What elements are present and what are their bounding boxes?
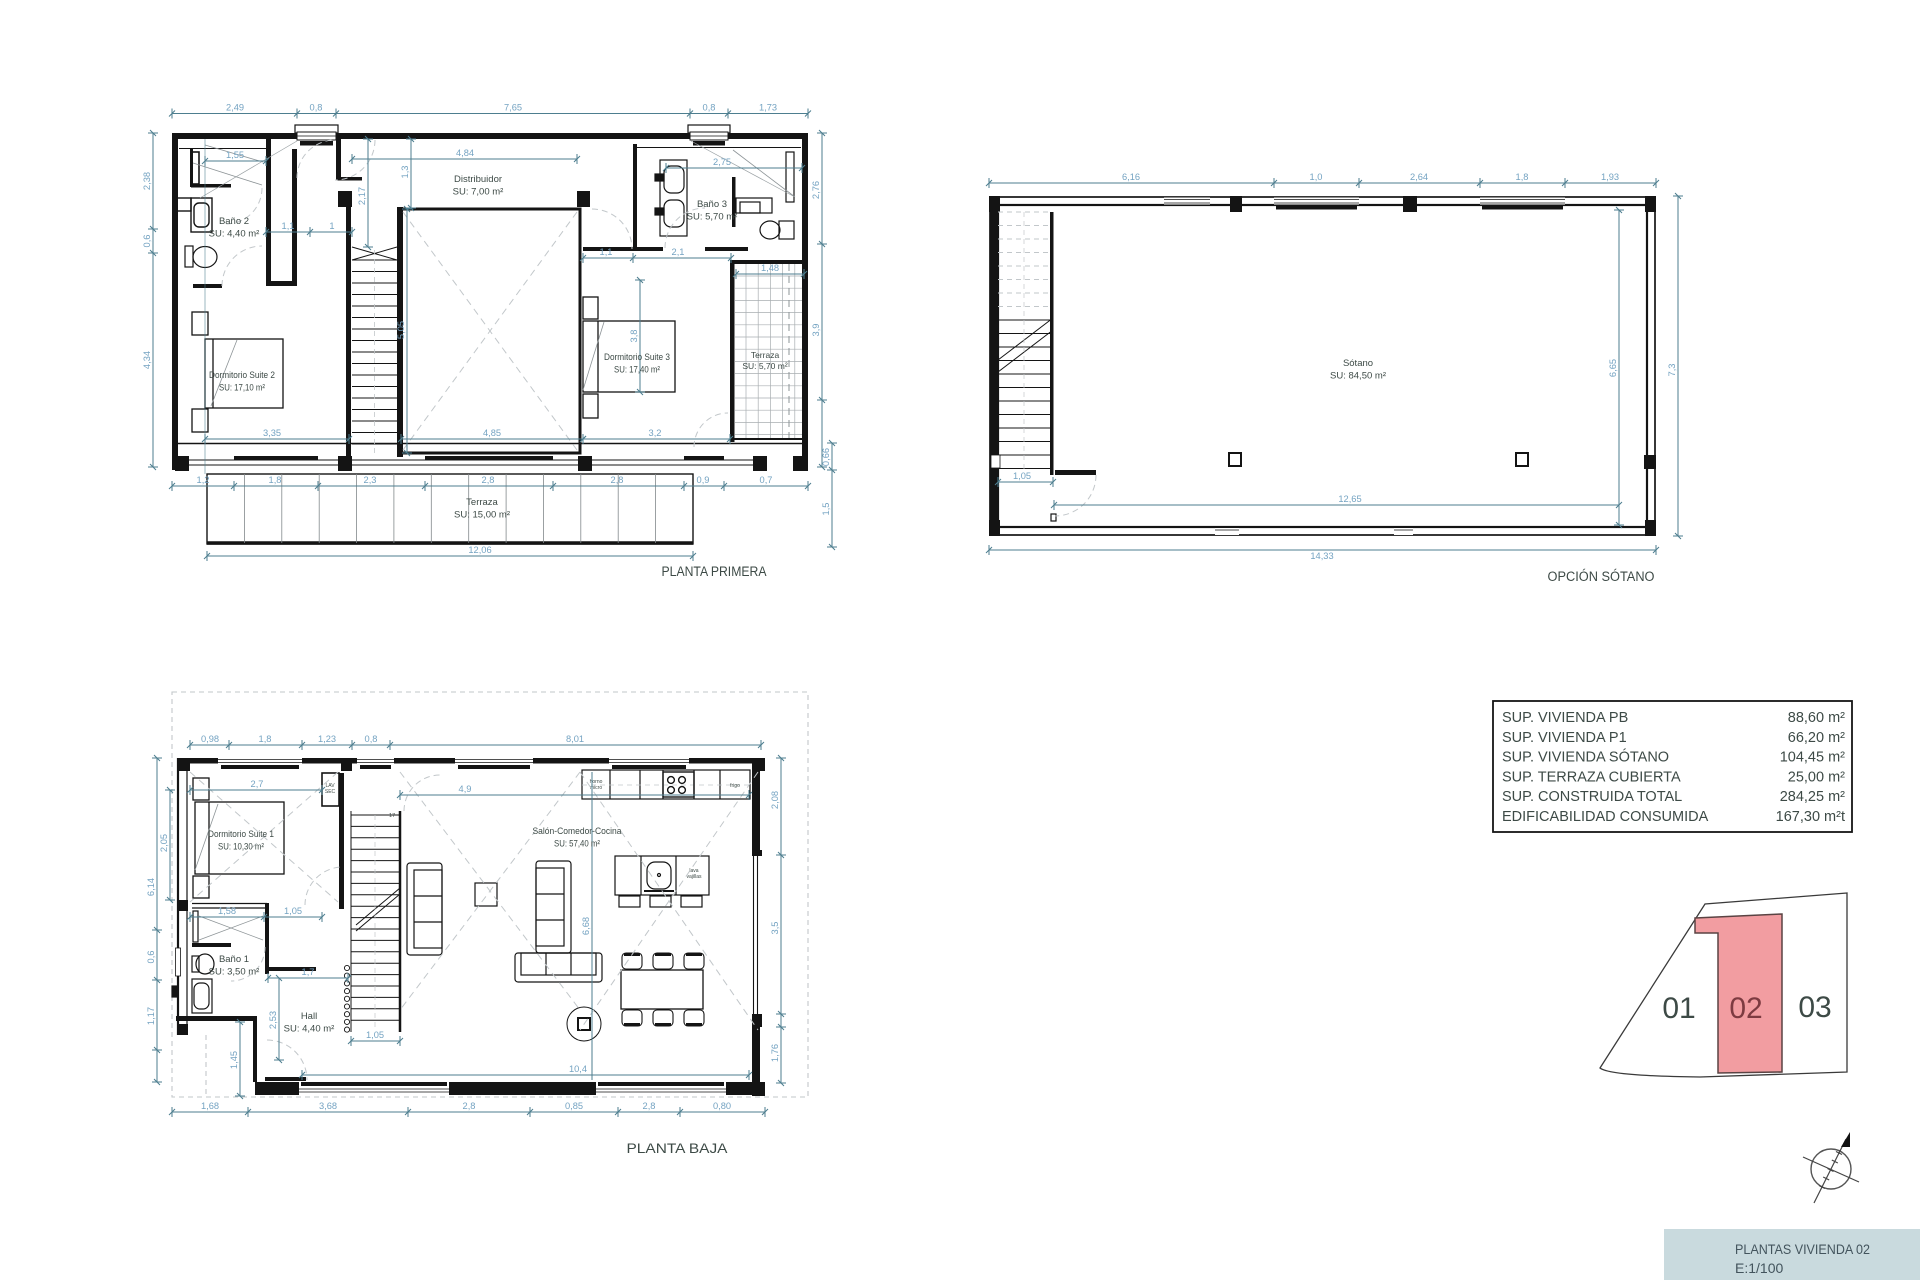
svg-text:1,73: 1,73 [759,103,777,113]
svg-text:8,01: 8,01 [566,734,584,744]
svg-text:0,9: 0,9 [697,475,710,485]
svg-text:Dormitorio Suite 2: Dormitorio Suite 2 [209,370,275,381]
svg-text:2,1: 2,1 [672,247,685,257]
svg-text:Sótano: Sótano [1343,358,1373,369]
svg-text:0,8: 0,8 [703,103,716,113]
svg-text:0,80: 0,80 [713,1101,731,1111]
svg-text:1,5: 1,5 [821,503,831,516]
svg-text:EDIFICABILIDAD CONSUMIDA: EDIFICABILIDAD CONSUMIDA [1502,809,1709,825]
svg-text:0,8: 0,8 [365,734,378,744]
svg-text:frigo: frigo [730,783,740,789]
svg-text:284,25 m²: 284,25 m² [1780,789,1845,805]
svg-text:12,65: 12,65 [1338,494,1361,504]
svg-text:4,85: 4,85 [483,428,501,438]
svg-text:02: 02 [1729,992,1762,1025]
svg-text:3,9: 3,9 [811,324,821,337]
svg-text:2,75: 2,75 [713,157,731,167]
svg-text:0,8: 0,8 [310,103,323,113]
svg-text:1,1: 1,1 [282,221,295,231]
svg-text:2,49: 2,49 [226,103,244,113]
svg-text:2,8: 2,8 [482,475,495,485]
svg-text:5,05: 5,05 [396,321,406,339]
svg-text:SU: 17,10 m²: SU: 17,10 m² [219,383,265,394]
svg-text:104,45 m²: 104,45 m² [1780,750,1845,766]
svg-text:03: 03 [1798,991,1831,1024]
svg-text:1,58: 1,58 [218,906,236,916]
svg-text:E:1/100: E:1/100 [1735,1260,1783,1276]
svg-text:4,34: 4,34 [142,351,152,369]
svg-text:Distribuidor: Distribuidor [454,174,502,185]
svg-text:Baño 2: Baño 2 [219,216,249,227]
svg-text:2,08: 2,08 [770,791,780,809]
svg-text:Salón-Comedor-Cocina: Salón-Comedor-Cocina [533,826,623,837]
svg-text:SUP. VIVIENDA PB: SUP. VIVIENDA PB [1502,710,1628,726]
svg-text:6,68: 6,68 [581,917,591,935]
svg-text:0,85: 0,85 [565,1101,583,1111]
svg-text:1,8: 1,8 [1516,172,1529,182]
svg-text:1,05: 1,05 [1013,471,1031,481]
svg-text:1,2: 1,2 [197,475,210,485]
svg-text:2,64: 2,64 [1410,172,1428,182]
svg-text:SU: 84,50 m²: SU: 84,50 m² [1330,371,1386,382]
svg-text:1,55: 1,55 [226,150,244,160]
svg-text:1,93: 1,93 [1601,172,1619,182]
svg-text:SU: 4,40 m²: SU: 4,40 m² [209,229,260,240]
svg-text:3,68: 3,68 [319,1101,337,1111]
svg-text:2,8: 2,8 [611,475,624,485]
svg-text:1,7: 1,7 [302,967,315,977]
svg-text:1,48: 1,48 [761,263,779,273]
svg-text:1,8: 1,8 [269,475,282,485]
svg-text:0,98: 0,98 [201,734,219,744]
svg-text:1,1: 1,1 [600,247,613,257]
svg-text:17: 17 [389,813,395,819]
svg-text:167,30 m²t: 167,30 m²t [1776,809,1845,825]
svg-text:2,38: 2,38 [142,172,152,190]
svg-text:SUP. VIVIENDA SÓTANO: SUP. VIVIENDA SÓTANO [1502,749,1669,766]
svg-text:2,05: 2,05 [159,834,169,852]
svg-text:2,3: 2,3 [364,475,377,485]
svg-text:7,65: 7,65 [504,103,522,113]
svg-text:1,68: 1,68 [201,1101,219,1111]
svg-text:0,66: 0,66 [821,448,831,466]
svg-text:OPCIÓN SÓTANO: OPCIÓN SÓTANO [1548,569,1655,584]
svg-text:6,16: 6,16 [1122,172,1140,182]
svg-text:SU: 5,70 m²: SU: 5,70 m² [742,361,788,371]
svg-text:1,17: 1,17 [146,1007,156,1025]
svg-text:2,17: 2,17 [357,187,367,205]
svg-text:SEC: SEC [325,789,336,795]
svg-text:PLANTA PRIMERA: PLANTA PRIMERA [662,564,767,579]
svg-text:2,76: 2,76 [811,181,821,199]
svg-text:1,05: 1,05 [366,1030,384,1040]
svg-text:2,7: 2,7 [251,779,264,789]
svg-text:SU: 7,00 m²: SU: 7,00 m² [453,187,504,198]
svg-text:1,3: 1,3 [400,166,410,179]
svg-text:1,05: 1,05 [284,906,302,916]
svg-text:2,8: 2,8 [643,1101,656,1111]
svg-text:7,3: 7,3 [1667,364,1677,377]
svg-text:SUP. TERRAZA CUBIERTA: SUP. TERRAZA CUBIERTA [1502,769,1681,785]
svg-text:vajillas: vajillas [686,874,702,880]
svg-text:6,14: 6,14 [146,878,156,896]
svg-text:SU: 57,40 m²: SU: 57,40 m² [554,839,600,850]
svg-text:Baño 3: Baño 3 [697,199,727,210]
svg-text:0,7: 0,7 [760,475,773,485]
svg-text:1,23: 1,23 [318,734,336,744]
svg-text:SU: 15,00 m²: SU: 15,00 m² [454,510,510,521]
svg-text:Dormitorio Suite 1: Dormitorio Suite 1 [208,829,274,840]
svg-text:SU: 3,50 m²: SU: 3,50 m² [209,967,260,978]
svg-text:SUP. VIVIENDA P1: SUP. VIVIENDA P1 [1502,730,1627,746]
svg-text:3,8: 3,8 [629,330,639,343]
svg-text:66,20 m²: 66,20 m² [1788,730,1845,746]
svg-text:01: 01 [1662,992,1695,1025]
svg-text:SUP. CONSTRUIDA TOTAL: SUP. CONSTRUIDA TOTAL [1502,789,1682,805]
svg-text:12,06: 12,06 [468,545,491,555]
svg-text:1: 1 [329,221,334,231]
svg-text:1,8: 1,8 [259,734,272,744]
svg-text:2,8: 2,8 [463,1101,476,1111]
svg-text:3,2: 3,2 [649,428,662,438]
svg-text:Baño 1: Baño 1 [219,954,249,965]
svg-text:SU: 5,70 m²: SU: 5,70 m² [687,212,738,223]
svg-text:25,00 m²: 25,00 m² [1788,769,1845,785]
svg-text:SU: 10,30 m²: SU: 10,30 m² [218,842,264,853]
svg-text:SU: 4,40 m²: SU: 4,40 m² [284,1024,335,1035]
svg-text:6,65: 6,65 [1608,359,1618,377]
svg-text:SU: 17,40 m²: SU: 17,40 m² [614,365,660,376]
svg-text:1,76: 1,76 [770,1044,780,1062]
svg-text:2,53: 2,53 [268,1011,278,1029]
svg-text:10,4: 10,4 [569,1064,587,1074]
svg-text:Hall: Hall [301,1011,317,1022]
svg-text:Terraza: Terraza [466,497,498,508]
svg-text:4,9: 4,9 [459,784,472,794]
svg-text:3,35: 3,35 [263,428,281,438]
svg-text:14,33: 14,33 [1310,551,1333,561]
svg-text:4,84: 4,84 [456,148,474,158]
svg-text:1,45: 1,45 [229,1051,239,1069]
svg-text:1,0: 1,0 [1310,172,1323,182]
svg-text:PLANTA BAJA: PLANTA BAJA [627,1141,728,1156]
svg-text:PLANTAS VIVIENDA 02: PLANTAS VIVIENDA 02 [1735,1241,1870,1257]
svg-text:Dormitorio Suite 3: Dormitorio Suite 3 [604,352,670,363]
svg-text:3,5: 3,5 [770,922,780,935]
svg-text:Terraza: Terraza [751,350,780,360]
svg-text:0,6: 0,6 [142,235,152,248]
svg-text:88,60 m²: 88,60 m² [1788,710,1845,726]
svg-text:0,6: 0,6 [146,951,156,964]
